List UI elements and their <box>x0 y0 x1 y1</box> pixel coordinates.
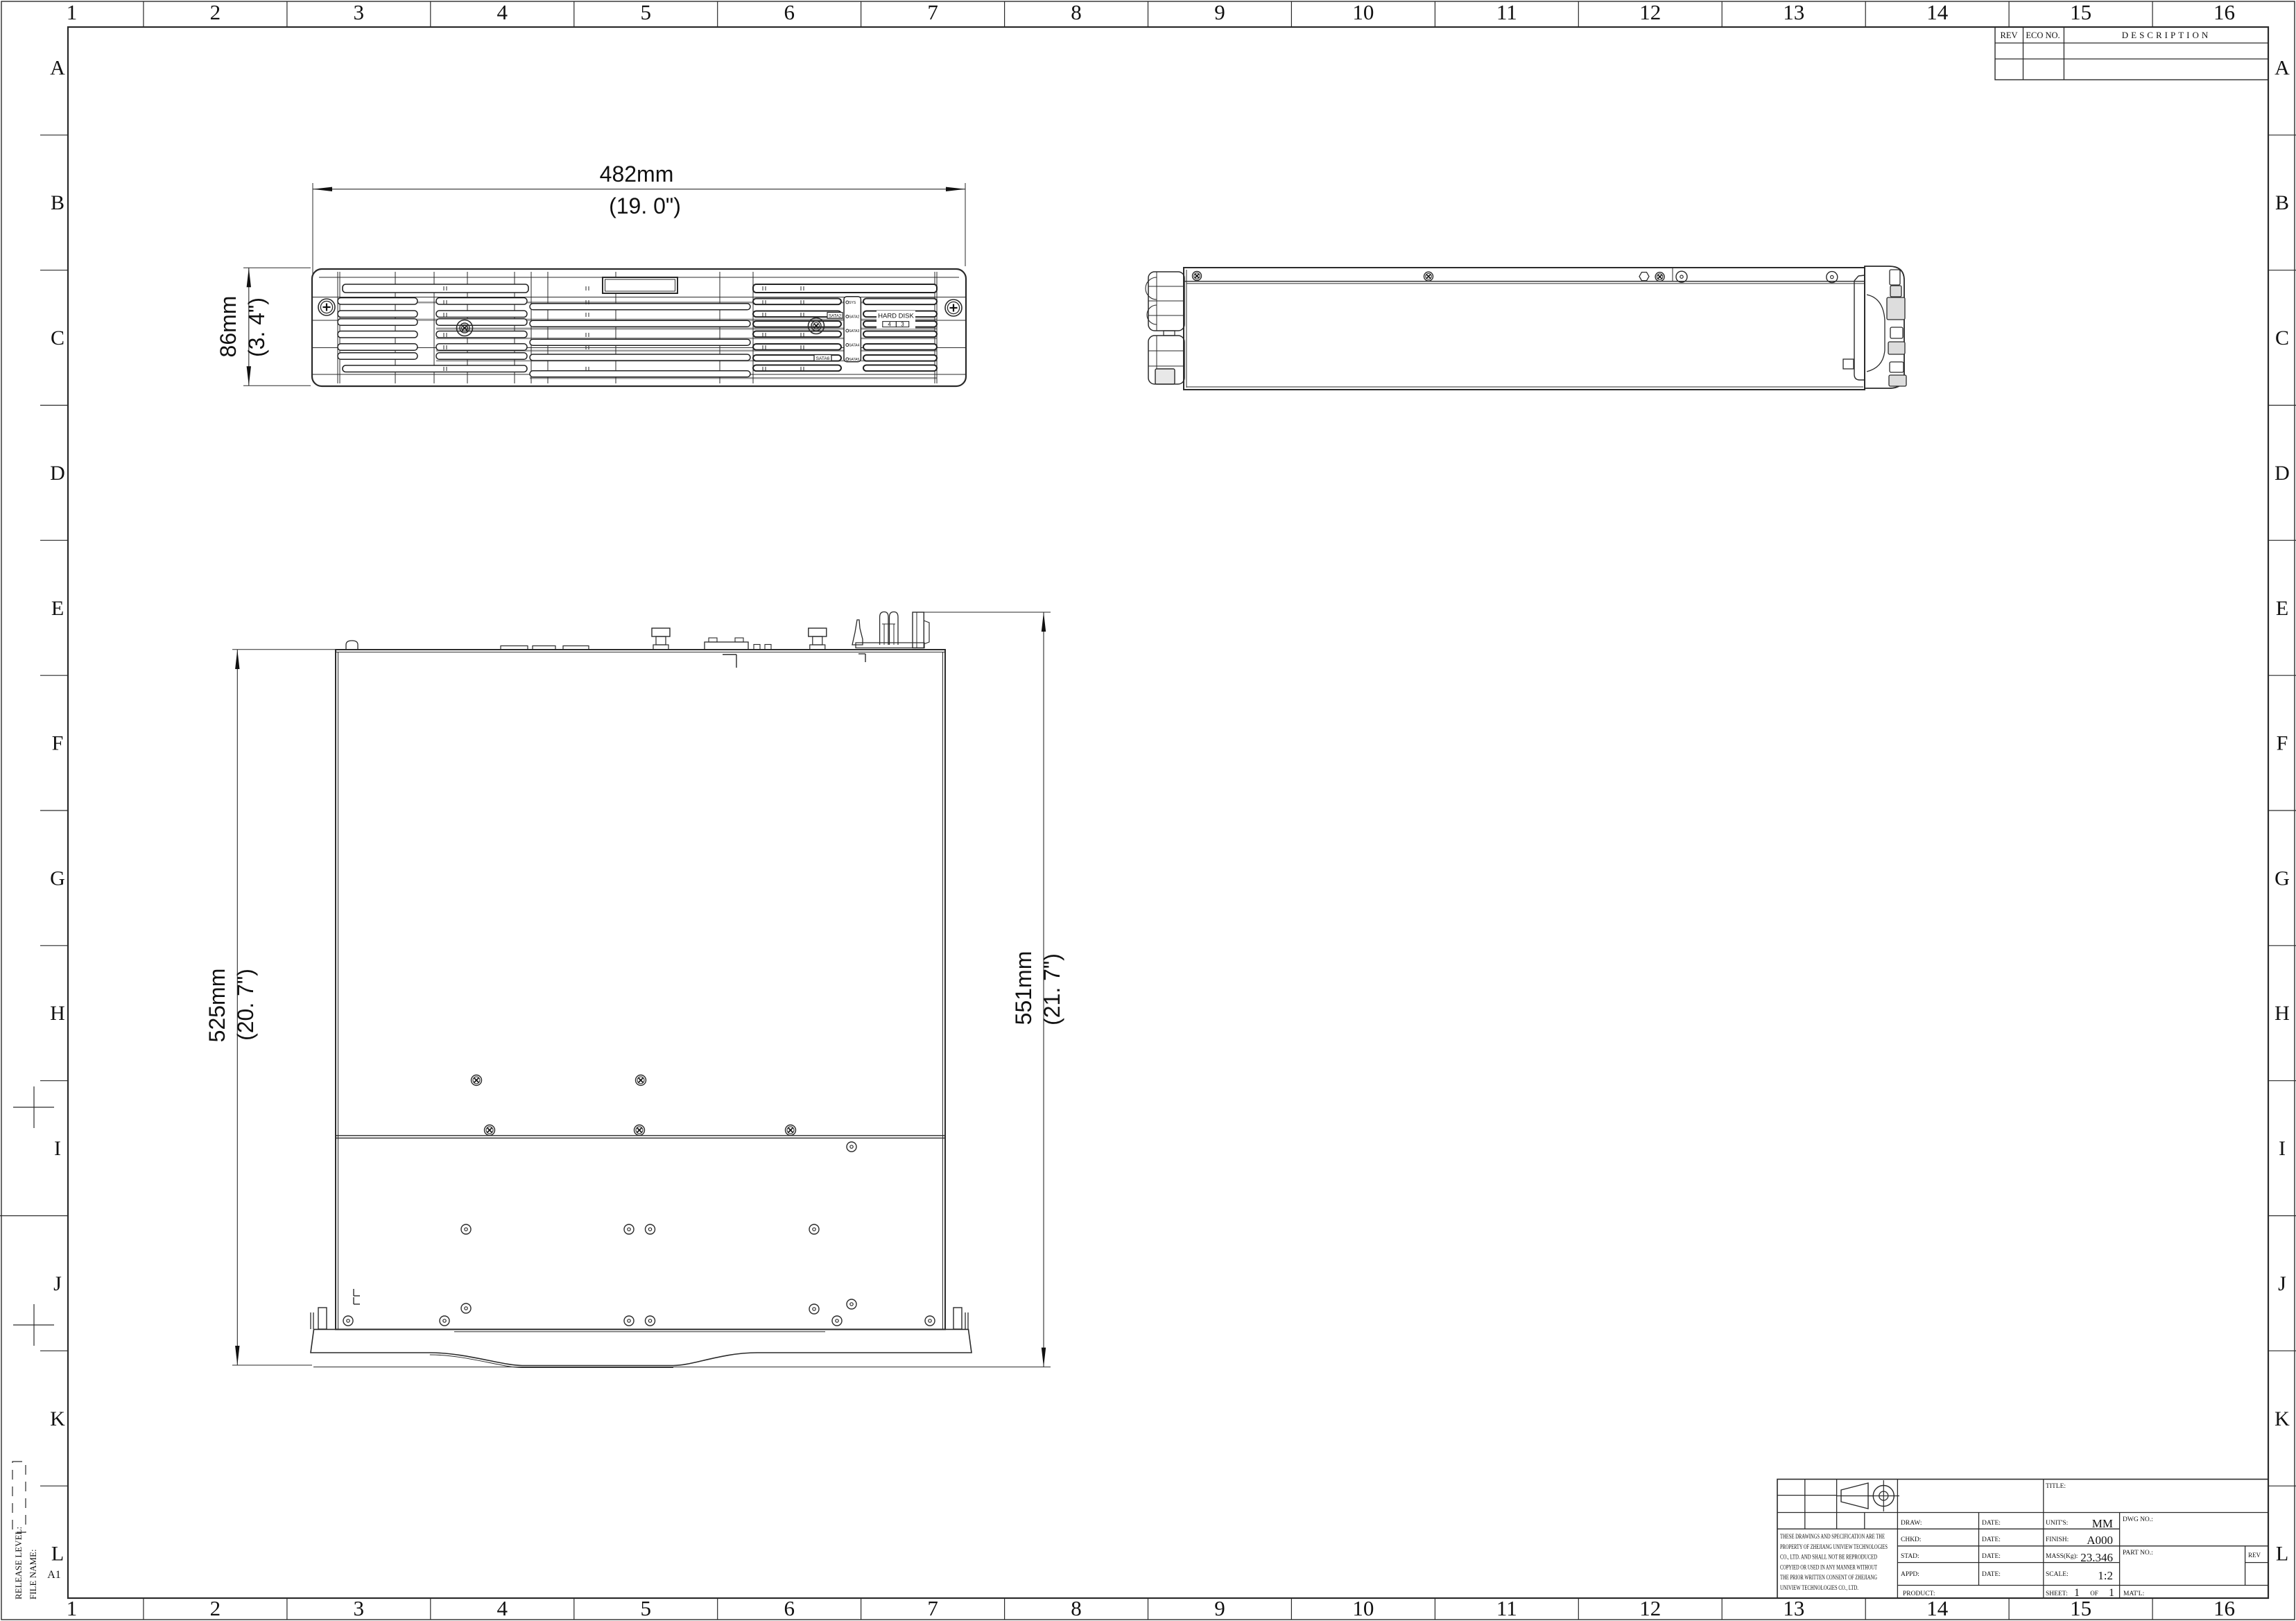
svg-text:REV: REV <box>2248 1552 2261 1559</box>
svg-text:11: 11 <box>1496 1596 1517 1620</box>
svg-text:16: 16 <box>2213 1596 2235 1620</box>
svg-text:D: D <box>2275 462 2290 485</box>
svg-text:13: 13 <box>1783 0 1804 24</box>
svg-text:DRAW:: DRAW: <box>1901 1520 1922 1527</box>
svg-text:1:2: 1:2 <box>2098 1569 2113 1582</box>
svg-text:C: C <box>2275 327 2289 349</box>
svg-text:1: 1 <box>67 0 78 24</box>
svg-text:H: H <box>2275 1002 2290 1025</box>
svg-text:STAD:: STAD: <box>1901 1553 1919 1560</box>
svg-text:THESE DRAWINGS AND SPECIFICATI: THESE DRAWINGS AND SPECIFICATION ARE THE <box>1780 1534 1885 1541</box>
svg-text:DATE:: DATE: <box>1982 1571 2001 1578</box>
svg-text:OF: OF <box>2090 1590 2098 1597</box>
svg-text:(20. 7"): (20. 7") <box>233 969 258 1041</box>
svg-text:DWG NO.:: DWG NO.: <box>2123 1516 2153 1523</box>
svg-text:SATA4: SATA4 <box>849 344 859 348</box>
svg-text:15: 15 <box>2070 0 2091 24</box>
svg-text:REV: REV <box>2001 31 2018 40</box>
svg-text:482mm: 482mm <box>600 162 674 187</box>
svg-text:86mm: 86mm <box>216 296 241 358</box>
svg-text:F: F <box>2277 732 2288 755</box>
svg-text:A000: A000 <box>2087 1534 2113 1547</box>
svg-text:TITLE:: TITLE: <box>2046 1483 2066 1490</box>
svg-text:(19. 0"): (19. 0") <box>609 193 681 218</box>
svg-text:SATA2: SATA2 <box>849 315 859 320</box>
svg-text:G: G <box>2275 867 2290 890</box>
svg-text:(21. 7"): (21. 7") <box>1039 953 1064 1025</box>
svg-text:J: J <box>53 1272 62 1295</box>
svg-text:SATA6: SATA6 <box>816 356 830 361</box>
svg-text:K: K <box>2275 1407 2290 1430</box>
svg-text:K: K <box>50 1407 65 1430</box>
svg-text:PRODUCT:: PRODUCT: <box>1903 1590 1935 1597</box>
svg-text:2: 2 <box>210 0 221 24</box>
svg-text:11: 11 <box>1496 0 1517 24</box>
svg-text:FILE NAME:: FILE NAME: <box>28 1549 38 1600</box>
svg-text:4: 4 <box>497 0 508 24</box>
svg-text:I: I <box>2279 1137 2286 1160</box>
svg-text:A1: A1 <box>47 1569 61 1581</box>
svg-text:UNIT'S:: UNIT'S: <box>2046 1520 2068 1527</box>
svg-text:5: 5 <box>640 1596 651 1620</box>
svg-text:1: 1 <box>67 1596 78 1620</box>
svg-text:CO., LTD. AND SHALL NOT BE REP: CO., LTD. AND SHALL NOT BE REPRODUCED <box>1780 1554 1877 1561</box>
svg-text:14: 14 <box>1926 0 1949 24</box>
svg-text:SATA2: SATA2 <box>829 315 842 319</box>
svg-text:DATE:: DATE: <box>1982 1553 2001 1560</box>
svg-text:CHKD:: CHKD: <box>1901 1536 1922 1543</box>
svg-text:7: 7 <box>927 1596 938 1620</box>
svg-text:ECO NO.: ECO NO. <box>2026 31 2060 40</box>
svg-text:PROPERTY OF ZHEJIANG UNIVIEW T: PROPERTY OF ZHEJIANG UNIVIEW TECHNOLOGIE… <box>1780 1544 1888 1551</box>
svg-text:G: G <box>50 867 65 890</box>
svg-text:PART NO.:: PART NO.: <box>2123 1550 2153 1557</box>
svg-text:6: 6 <box>784 0 795 24</box>
svg-text:3: 3 <box>354 1596 365 1620</box>
svg-text:13: 13 <box>1783 1596 1804 1620</box>
svg-text:SHEET:: SHEET: <box>2046 1590 2068 1597</box>
svg-text:HARD DISK: HARD DISK <box>878 313 914 320</box>
svg-text:7: 7 <box>927 0 938 24</box>
svg-text:A: A <box>50 56 65 79</box>
svg-text:SYS: SYS <box>849 301 856 305</box>
svg-text:551mm: 551mm <box>1011 951 1036 1025</box>
svg-text:MM: MM <box>2092 1517 2113 1530</box>
svg-text:J: J <box>2278 1272 2286 1295</box>
svg-text:14: 14 <box>1926 1596 1949 1620</box>
svg-text:3: 3 <box>354 0 365 24</box>
svg-text:8: 8 <box>1071 1596 1082 1620</box>
svg-text:D: D <box>50 462 65 485</box>
svg-text:9: 9 <box>1214 1596 1225 1620</box>
svg-text:E: E <box>2276 597 2288 620</box>
svg-text:L: L <box>51 1543 64 1566</box>
svg-text:9: 9 <box>1214 0 1225 24</box>
svg-text:F: F <box>52 732 64 755</box>
svg-text:1: 1 <box>2074 1587 2080 1599</box>
svg-text:C: C <box>51 327 64 349</box>
svg-text:MAT'L:: MAT'L: <box>2123 1590 2144 1597</box>
svg-text:10: 10 <box>1352 1596 1374 1620</box>
svg-text:16: 16 <box>2213 0 2235 24</box>
svg-text:5: 5 <box>640 0 651 24</box>
svg-text:15: 15 <box>2070 1596 2091 1620</box>
svg-text:L: L <box>2276 1543 2288 1566</box>
svg-text:COPYIED OR USED IN ANY MANNER: COPYIED OR USED IN ANY MANNER WITHOUT <box>1780 1564 1877 1571</box>
svg-text:MASS(Kg):: MASS(Kg): <box>2046 1552 2078 1560</box>
svg-text:525mm: 525mm <box>205 969 230 1043</box>
svg-text:APPD:: APPD: <box>1901 1571 1919 1578</box>
svg-text:SCALE:: SCALE: <box>2046 1571 2069 1578</box>
svg-text:DATE:: DATE: <box>1982 1520 2001 1527</box>
svg-text:3: 3 <box>901 322 904 328</box>
svg-text:FINISH:: FINISH: <box>2046 1536 2069 1543</box>
svg-text:4: 4 <box>888 322 891 328</box>
svg-text:UNIVIEW TECHNOLOGIES CO., LTD.: UNIVIEW TECHNOLOGIES CO., LTD. <box>1780 1585 1858 1592</box>
svg-text:B: B <box>51 191 64 214</box>
svg-text:SATA3: SATA3 <box>849 329 859 333</box>
svg-text:E: E <box>51 597 64 620</box>
svg-text:H: H <box>50 1002 65 1025</box>
svg-text:2: 2 <box>210 1596 221 1620</box>
svg-text:4: 4 <box>497 1596 508 1620</box>
svg-text:DATE:: DATE: <box>1982 1536 2001 1543</box>
svg-text:RELEASE LEVEL:: RELEASE LEVEL: <box>13 1527 24 1600</box>
svg-text:12: 12 <box>1639 1596 1661 1620</box>
svg-text:DESCRIPTION: DESCRIPTION <box>2122 30 2211 40</box>
svg-text:SATA5: SATA5 <box>849 358 859 362</box>
svg-text:1: 1 <box>2109 1587 2114 1599</box>
svg-text:8: 8 <box>1071 0 1082 24</box>
svg-text:23.346: 23.346 <box>2080 1551 2113 1564</box>
svg-text:B: B <box>2275 191 2289 214</box>
svg-text:THE PRIOR WRITTEN CONSENT OF Z: THE PRIOR WRITTEN CONSENT OF ZHEJIANG <box>1780 1575 1877 1581</box>
svg-text:A: A <box>2275 56 2290 79</box>
svg-text:I: I <box>54 1137 61 1160</box>
svg-text:6: 6 <box>784 1596 795 1620</box>
svg-text:12: 12 <box>1639 0 1661 24</box>
svg-text:10: 10 <box>1352 0 1374 24</box>
svg-text:(3. 4"): (3. 4") <box>244 297 269 357</box>
